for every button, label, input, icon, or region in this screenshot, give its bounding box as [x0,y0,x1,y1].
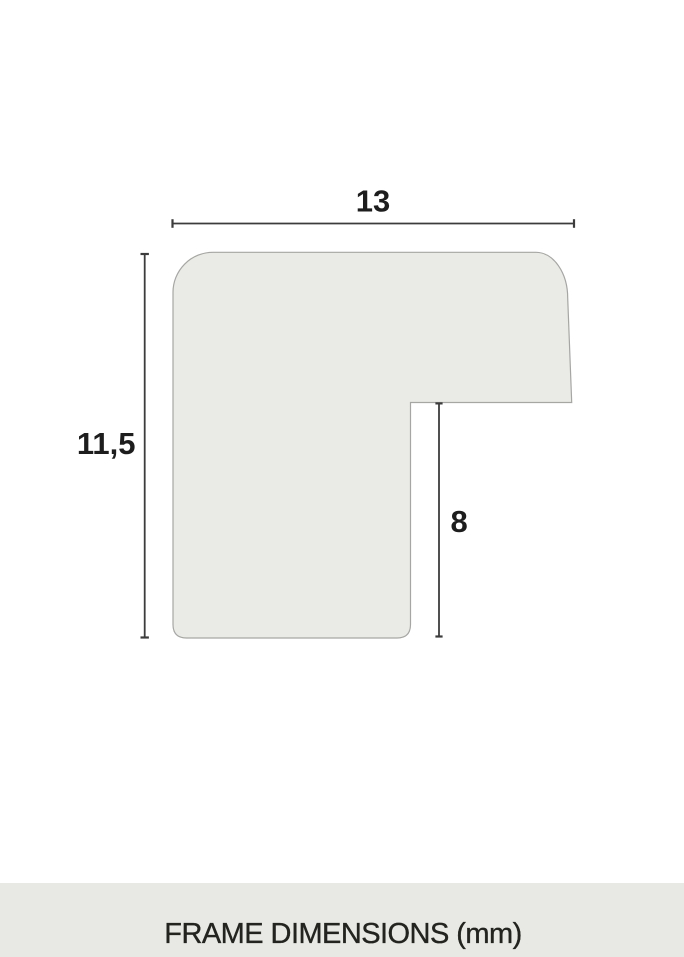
svg-text:11,5: 11,5 [77,426,136,461]
svg-text:8: 8 [451,504,468,539]
svg-text:13: 13 [356,184,390,219]
svg-text:FRAME DIMENSIONS (mm): FRAME DIMENSIONS (mm) [164,918,521,950]
